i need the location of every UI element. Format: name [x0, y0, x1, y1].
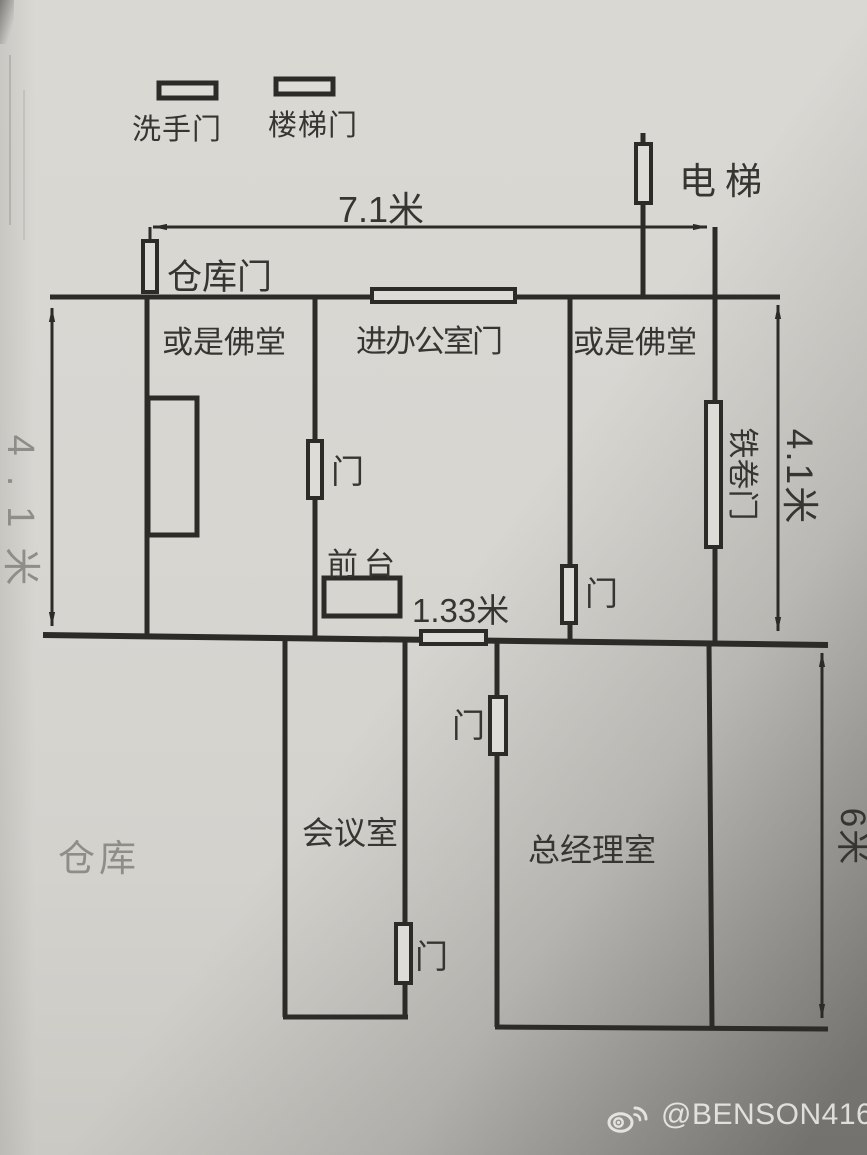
elevator-door-symbol [636, 144, 651, 203]
gm-office-door-label: 门 [452, 699, 485, 747]
middle-room-door-label: 门 [585, 567, 618, 615]
left-room-door-label: 门 [331, 445, 364, 493]
wall-gm-office-bottom [495, 1027, 828, 1029]
elevator-label: 电梯 [679, 151, 771, 205]
gm-office-door-symbol [490, 697, 506, 754]
office-entry-door-symbol [372, 289, 515, 302]
wall-gm-office-right [709, 644, 712, 1027]
floor-plan: 洗手门 楼梯门 电梯 7.1米 仓库门 或是佛堂 进办公室门 或是佛堂 4.1米… [0, 0, 867, 1155]
dimension-right-height-label: 4.1米 [778, 397, 820, 557]
room-left-label: 或是佛堂 [162, 317, 286, 362]
rolling-shutter-door-label: 铁卷门 [723, 406, 761, 542]
room-right-label: 或是佛堂 [573, 317, 697, 362]
dimension-top-width-label: 7.1米 [338, 181, 424, 233]
warehouse-door-symbol [143, 241, 157, 292]
altar-alcove-rect [148, 398, 197, 535]
left-room-door-symbol [308, 441, 322, 498]
dimension-left-height-label: 4.1米 [0, 390, 42, 650]
dimension-corridor-width-label: 1.33米 [412, 584, 509, 632]
legend-stair-door-symbol [276, 79, 333, 94]
watermark-handle: @BENSON41661 [661, 1098, 867, 1132]
warehouse-door-label: 仓库门 [167, 249, 272, 300]
rolling-shutter-door-symbol [706, 402, 721, 547]
warehouse-label: 仓库 [58, 828, 140, 882]
weibo-icon [606, 1096, 652, 1134]
watermark: @BENSON41661 [606, 1096, 867, 1134]
meeting-room-door-label: 门 [415, 930, 448, 978]
photo-background: 洗手门 楼梯门 电梯 7.1米 仓库门 或是佛堂 进办公室门 或是佛堂 4.1米… [0, 0, 867, 1155]
legend-washroom-door-symbol [159, 83, 216, 98]
office-entry-door-label: 进办公室门 [356, 316, 501, 361]
meeting-room-door-symbol [396, 924, 411, 983]
meeting-room-label: 会议室 [302, 808, 398, 854]
legend-stair-door-label: 楼梯门 [268, 102, 358, 144]
middle-room-door-symbol [562, 566, 576, 623]
corridor-door-symbol [421, 631, 486, 644]
dimension-bottom-height-label: 6米 [831, 782, 867, 892]
front-desk-label: 前台 [327, 539, 401, 584]
legend-washroom-door-label: 洗手门 [132, 106, 222, 148]
gm-office-label: 总经理室 [528, 825, 656, 871]
